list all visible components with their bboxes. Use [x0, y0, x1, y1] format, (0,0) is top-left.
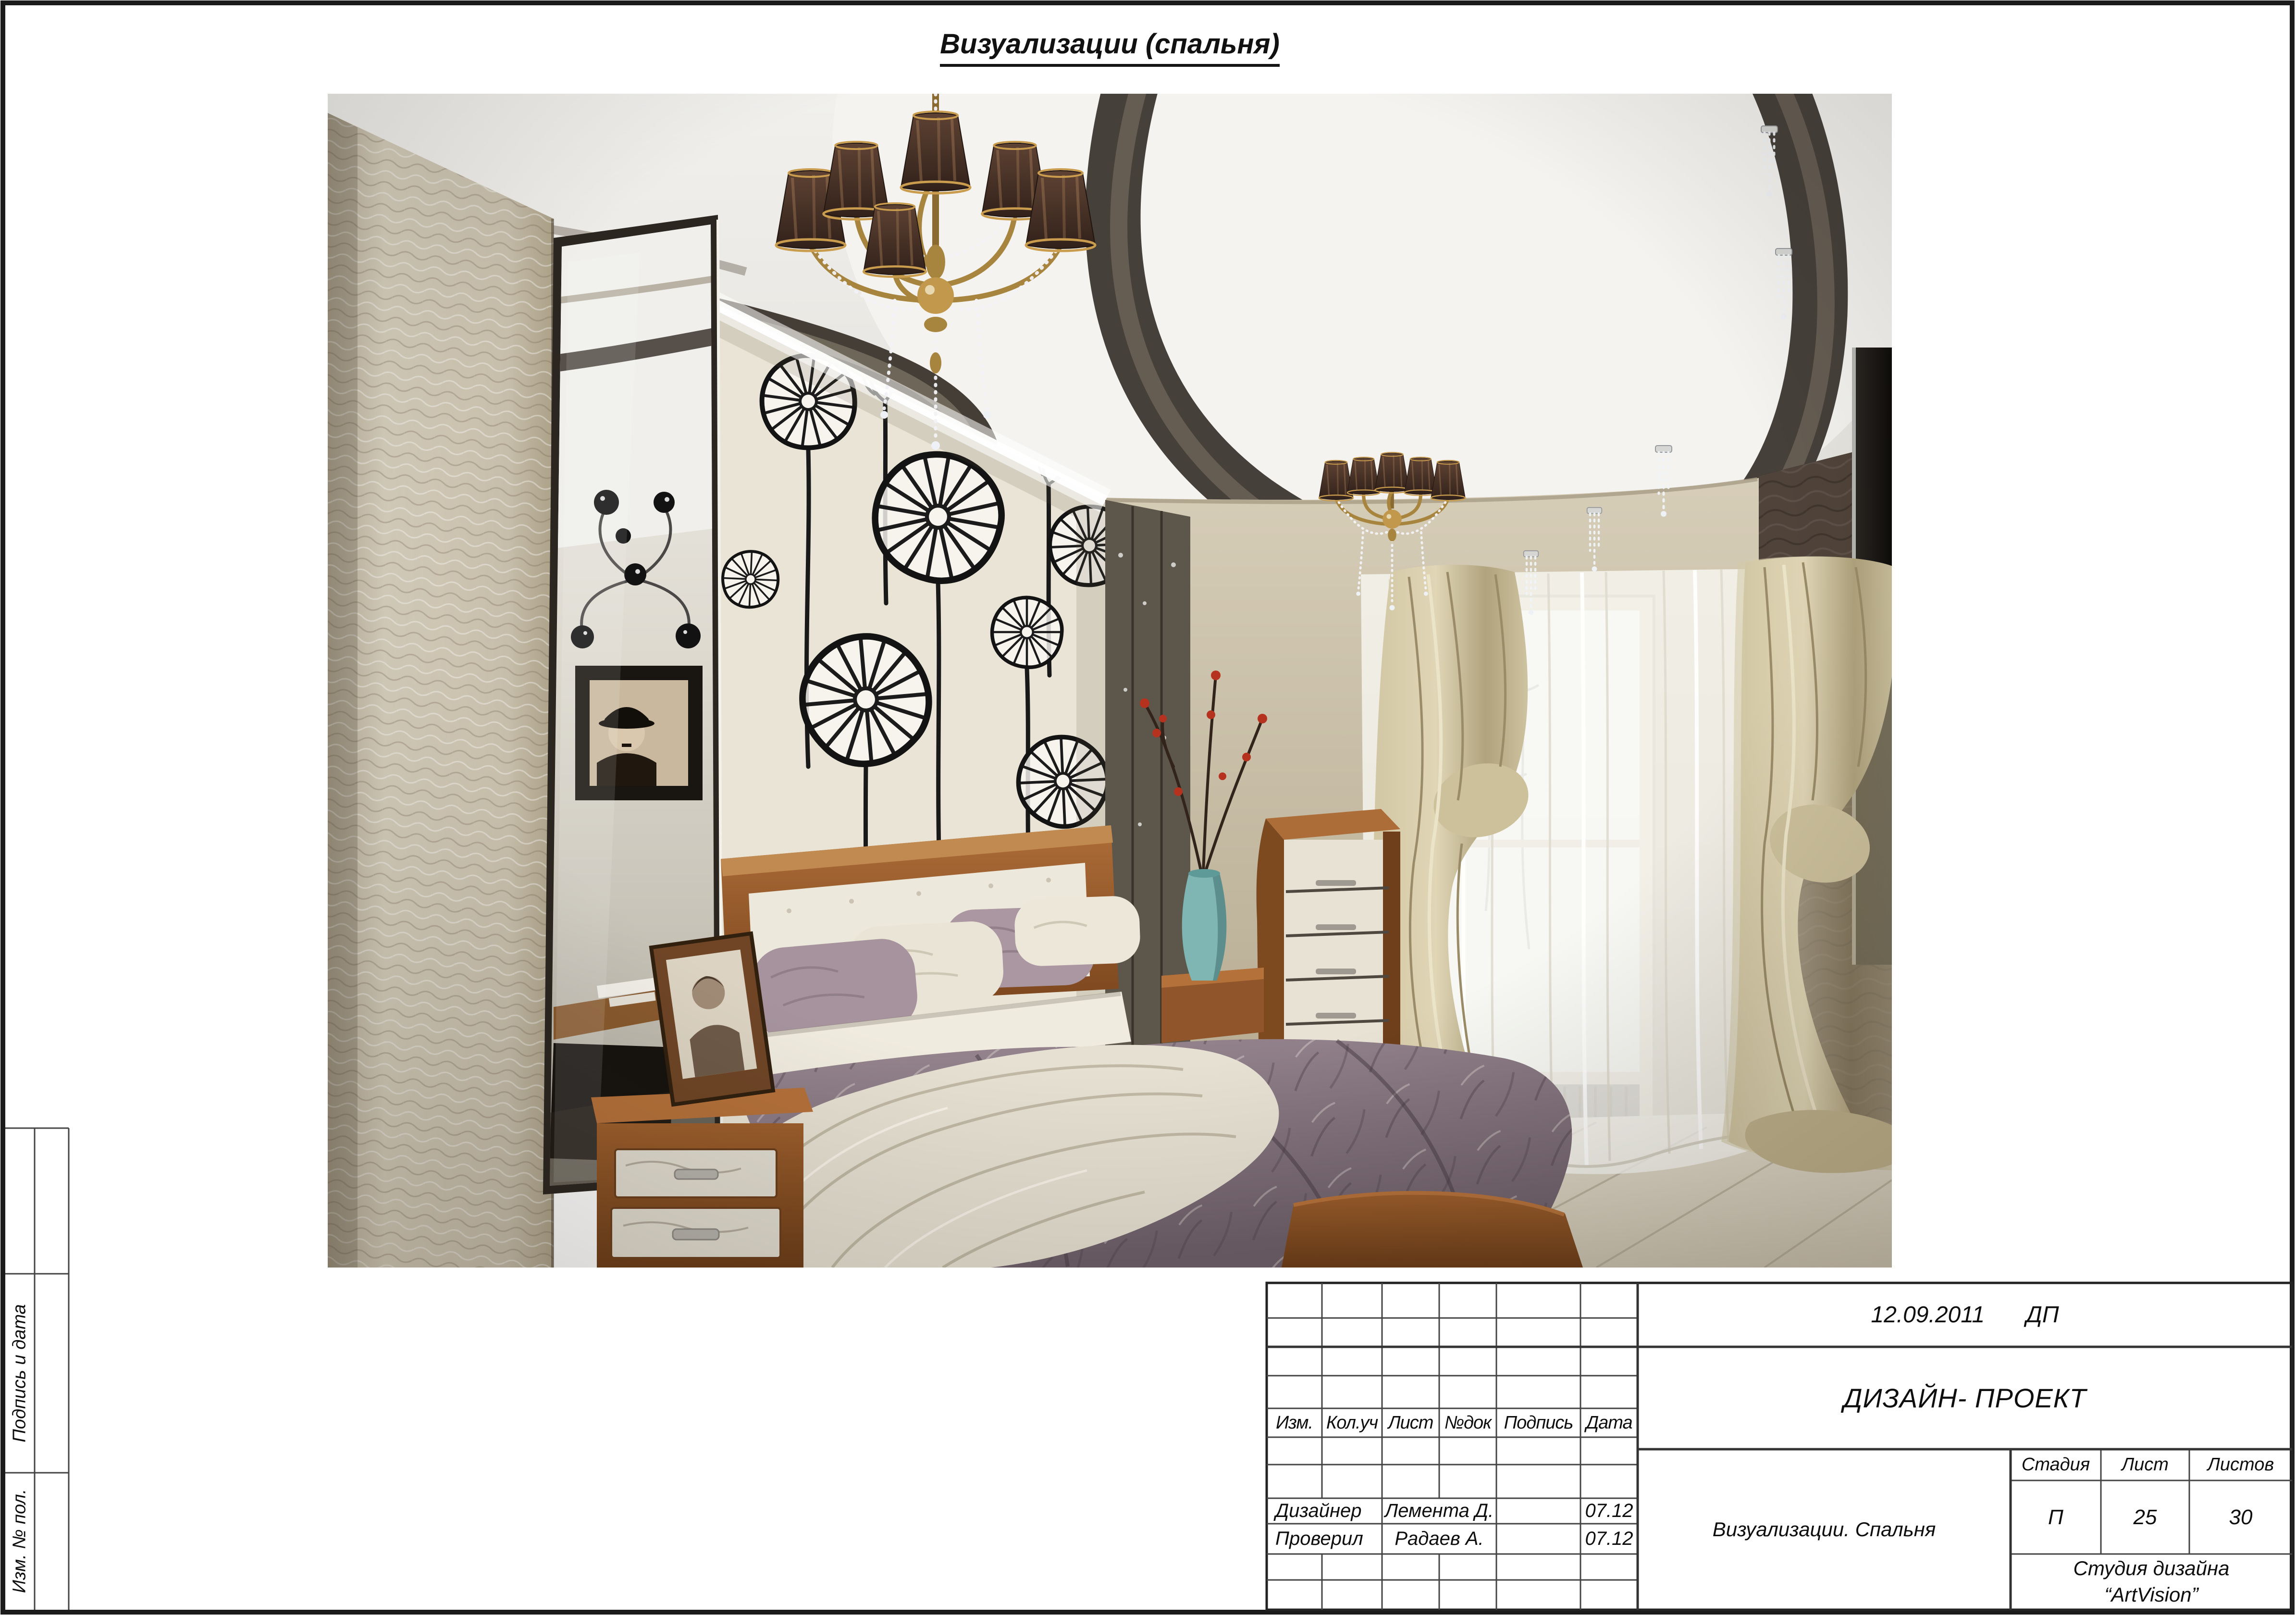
checker-date: 07.12 — [1580, 1524, 1638, 1554]
stage-value: П — [2011, 1480, 2101, 1554]
signer-date: 07.12 — [1580, 1498, 1638, 1524]
rev-header-list: Лист — [1382, 1408, 1439, 1437]
rev-header-podpis: Подпись — [1496, 1408, 1580, 1437]
sheet-label: Лист — [2101, 1449, 2189, 1480]
doc-designation-cell: 12.09.2011 ДП — [1638, 1283, 2292, 1347]
doc-code: ДП — [2026, 1302, 2059, 1328]
sheet-value: 25 — [2101, 1480, 2189, 1554]
drawing-sheet: { "page": { "title": "Визуализации (спал… — [0, 0, 2296, 1616]
strip-label-change-number: Изм. № пол. — [10, 1489, 30, 1593]
signer-name: Лемента Д. — [1382, 1498, 1496, 1524]
doc-date: 12.09.2011 — [1871, 1302, 1985, 1328]
strip-label-signature-date: Подпись и дата — [10, 1304, 30, 1442]
sheets-label: Листов — [2189, 1449, 2292, 1480]
studio-name-line2: “ArtVision” — [2104, 1582, 2198, 1608]
checker-role: Проверил — [1269, 1524, 1380, 1554]
rev-header-data: Дата — [1580, 1408, 1638, 1437]
rev-header-izm: Изм. — [1267, 1408, 1322, 1437]
checker-name: Радаев А. — [1382, 1524, 1496, 1554]
rev-header-koluch: Кол.уч — [1322, 1408, 1382, 1437]
signer-role: Дизайнер — [1269, 1498, 1380, 1524]
rev-header-ndok: №док — [1439, 1408, 1496, 1437]
sheets-value: 30 — [2189, 1480, 2292, 1554]
stage-label: Стадия — [2011, 1449, 2101, 1480]
studio-cell: Студия дизайна “ArtVision” — [2011, 1554, 2292, 1610]
project-title-cell: ДИЗАЙН- ПРОЕКТ — [1638, 1347, 2292, 1449]
studio-name-line1: Студия дизайна — [2074, 1555, 2230, 1582]
sheet-name-cell: Визуализации. Спальня — [1638, 1449, 2011, 1610]
